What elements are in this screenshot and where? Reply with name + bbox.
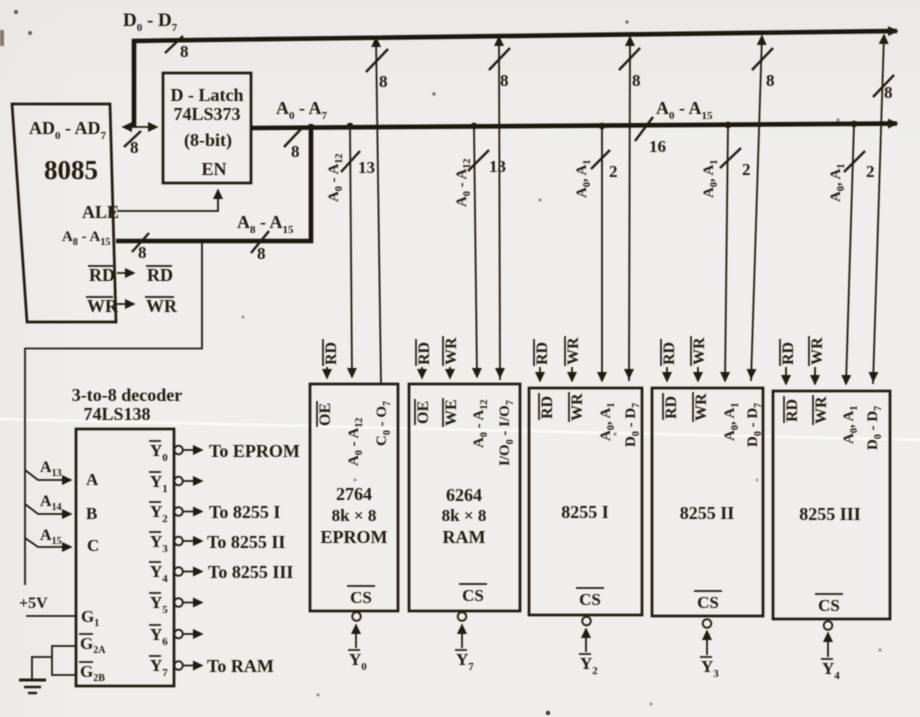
svg-text:D - Latch: D - Latch (171, 85, 244, 105)
svg-text:8: 8 (766, 71, 775, 90)
svg-text:8k × 8: 8k × 8 (332, 506, 377, 525)
svg-text:C: C (87, 536, 99, 555)
svg-text:CS: CS (818, 596, 840, 615)
svg-text:13: 13 (358, 158, 375, 177)
svg-text:8: 8 (379, 72, 388, 91)
svg-text:8: 8 (180, 42, 189, 61)
svg-text:6264: 6264 (446, 485, 482, 505)
svg-text:CS: CS (579, 590, 601, 609)
svg-text:8: 8 (291, 142, 300, 161)
svg-text:74LS373: 74LS373 (173, 104, 240, 124)
svg-text:To EPROM: To EPROM (209, 441, 300, 461)
svg-text:2: 2 (866, 162, 875, 181)
svg-text:CS: CS (350, 588, 372, 607)
svg-text:8: 8 (257, 244, 266, 263)
svg-text:RD: RD (89, 265, 115, 285)
svg-text:RD: RD (416, 342, 433, 365)
svg-text:RD: RD (661, 342, 678, 365)
svg-text:WR: WR (569, 393, 586, 421)
svg-text:8: 8 (500, 71, 509, 90)
svg-text:8k × 8: 8k × 8 (442, 506, 487, 525)
svg-text:WR: WR (87, 296, 119, 316)
svg-text:2: 2 (742, 160, 751, 179)
svg-text:RD: RD (323, 342, 340, 365)
svg-text:WR: WR (565, 337, 582, 365)
svg-text:EN: EN (201, 159, 226, 179)
svg-text:RD: RD (534, 342, 551, 365)
svg-text:8: 8 (884, 83, 893, 102)
svg-text:+5V: +5V (19, 595, 48, 612)
svg-text:RD: RD (539, 396, 556, 419)
svg-text:CS: CS (697, 593, 719, 612)
svg-text:OE: OE (415, 401, 432, 424)
svg-text:To 8255 I: To 8255 I (209, 502, 280, 522)
svg-text:To 8255 III: To 8255 III (208, 562, 293, 582)
svg-text:To RAM: To RAM (207, 656, 274, 676)
svg-text:B: B (86, 504, 97, 523)
svg-text:A: A (86, 470, 99, 489)
svg-text:3-to-8 decoder: 3-to-8 decoder (72, 385, 182, 405)
svg-text:13: 13 (489, 157, 506, 176)
svg-text:D0 - D7: D0 - D7 (123, 10, 178, 34)
svg-text:74LS138: 74LS138 (83, 404, 150, 424)
svg-text:8085: 8085 (44, 155, 98, 185)
svg-text:8: 8 (130, 138, 139, 157)
svg-text:EPROM: EPROM (321, 527, 388, 547)
svg-text:8: 8 (138, 243, 147, 262)
svg-text:2764: 2764 (336, 484, 372, 504)
svg-text:WR: WR (146, 296, 178, 316)
svg-text:RD: RD (784, 399, 801, 422)
svg-text:RAM: RAM (443, 527, 486, 547)
svg-text:16: 16 (649, 137, 666, 156)
svg-text:WR: WR (813, 396, 830, 424)
svg-text:2: 2 (609, 162, 618, 181)
svg-text:OE: OE (317, 403, 334, 426)
svg-text:ALE: ALE (82, 202, 119, 222)
svg-text:WR: WR (443, 337, 460, 365)
svg-text:8: 8 (632, 71, 641, 90)
svg-text:To 8255 II: To 8255 II (207, 532, 285, 552)
svg-text:8255 III: 8255 III (799, 504, 861, 524)
svg-text:WR: WR (691, 337, 708, 365)
svg-text:RD: RD (780, 342, 797, 365)
svg-text:WR: WR (693, 393, 710, 421)
svg-text:RD: RD (147, 265, 173, 285)
svg-text:(8-bit): (8-bit) (184, 130, 232, 151)
svg-text:CS: CS (462, 586, 484, 605)
svg-text:8255 I: 8255 I (561, 502, 609, 522)
svg-text:WR: WR (809, 337, 826, 365)
svg-text:RD: RD (663, 396, 680, 419)
svg-text:WE: WE (443, 399, 460, 426)
svg-text:8255 II: 8255 II (680, 503, 735, 523)
